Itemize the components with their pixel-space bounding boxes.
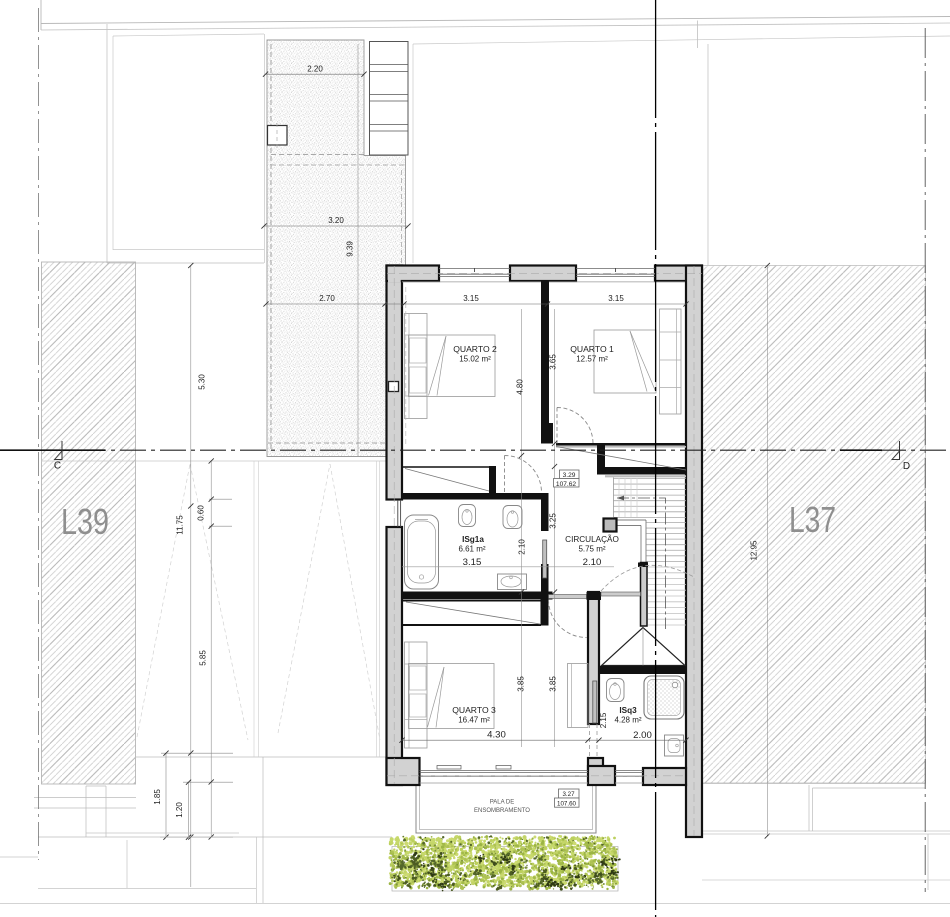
svg-text:ISg1a: ISg1a (462, 535, 484, 544)
svg-text:1.85: 1.85 (153, 789, 162, 805)
svg-text:L37: L37 (789, 499, 836, 540)
svg-text:2.10: 2.10 (583, 557, 602, 568)
svg-text:0.60: 0.60 (197, 505, 206, 521)
svg-text:5.85: 5.85 (199, 650, 208, 666)
svg-text:2.10: 2.10 (518, 539, 527, 555)
svg-text:2.15: 2.15 (599, 712, 608, 728)
svg-text:9.39: 9.39 (346, 241, 355, 257)
svg-text:4.30: 4.30 (487, 730, 506, 741)
svg-text:3.20: 3.20 (328, 216, 344, 225)
svg-text:3.15: 3.15 (463, 557, 482, 568)
svg-text:ENSOMBRAMENTO: ENSOMBRAMENTO (474, 808, 530, 814)
svg-text:3.15: 3.15 (608, 294, 624, 303)
svg-text:PALA DE: PALA DE (490, 800, 515, 806)
svg-text:16.47 m²: 16.47 m² (458, 716, 490, 725)
svg-text:QUARTO 2: QUARTO 2 (453, 344, 497, 354)
svg-text:107.60: 107.60 (557, 801, 576, 808)
svg-text:2.00: 2.00 (633, 730, 652, 741)
svg-text:L39: L39 (61, 501, 109, 542)
svg-text:5.75 m²: 5.75 m² (578, 545, 605, 554)
svg-text:4.28 m²: 4.28 m² (614, 716, 641, 725)
svg-text:ISq3: ISq3 (619, 706, 637, 715)
svg-text:12.57 m²: 12.57 m² (576, 355, 608, 364)
svg-text:11.75: 11.75 (176, 515, 185, 535)
svg-text:3.25: 3.25 (549, 513, 558, 529)
svg-text:4.80: 4.80 (516, 379, 525, 395)
svg-text:CIRCULAÇÃO: CIRCULAÇÃO (565, 534, 619, 544)
svg-text:3.15: 3.15 (463, 294, 479, 303)
svg-text:QUARTO 1: QUARTO 1 (570, 344, 614, 354)
svg-text:3.85: 3.85 (549, 676, 558, 692)
svg-text:D: D (903, 461, 910, 472)
svg-text:2.20: 2.20 (307, 65, 323, 74)
svg-text:15.02 m²: 15.02 m² (459, 355, 491, 364)
svg-text:5.30: 5.30 (198, 374, 207, 390)
svg-text:3.27: 3.27 (562, 791, 575, 798)
svg-text:QUARTO 3: QUARTO 3 (452, 705, 496, 715)
svg-text:3.65: 3.65 (549, 354, 558, 370)
svg-text:1.20: 1.20 (175, 802, 184, 818)
svg-text:6.61 m²: 6.61 m² (458, 545, 485, 554)
svg-text:3.85: 3.85 (517, 676, 526, 692)
svg-text:2.70: 2.70 (319, 294, 335, 303)
svg-text:C: C (54, 461, 61, 472)
svg-text:3.29: 3.29 (563, 472, 576, 479)
svg-text:12.95: 12.95 (750, 540, 759, 561)
svg-text:107.62: 107.62 (556, 481, 577, 488)
